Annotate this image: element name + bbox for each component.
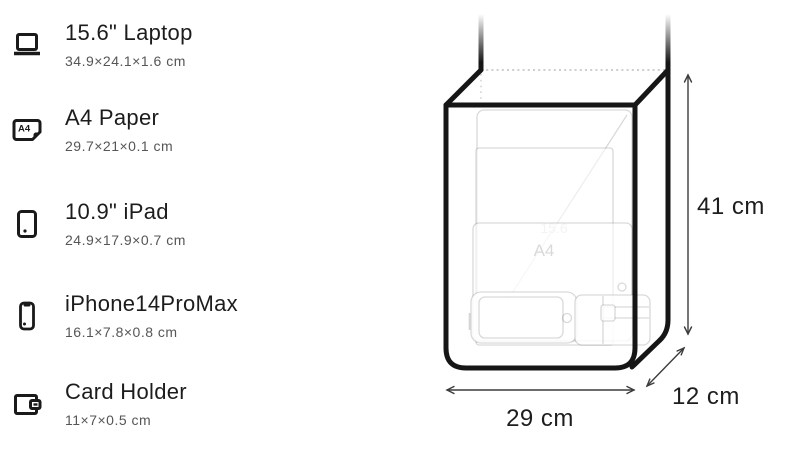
a4-paper-icon: A4 xyxy=(10,113,44,147)
bag-dimensions-figure: 15.6" Laptop 34.9×24.1×1.6 cm A4 A4 Pape… xyxy=(0,0,800,455)
item-title: 15.6" Laptop xyxy=(65,20,193,46)
right-strap xyxy=(666,14,671,71)
bag-top-right-edge xyxy=(635,70,668,105)
left-strap xyxy=(479,14,484,71)
item-title: A4 Paper xyxy=(65,105,173,131)
height-dimension-label: 41 cm xyxy=(697,193,765,220)
item-title: iPhone14ProMax xyxy=(65,291,238,317)
item-dimensions: 11×7×0.5 cm xyxy=(65,412,187,428)
list-item-a4-paper: A4 A4 Paper 29.7×21×0.1 cm xyxy=(10,105,173,154)
item-dimensions: 24.9×17.9×0.7 cm xyxy=(65,232,186,248)
item-title: Card Holder xyxy=(65,379,187,405)
item-dimensions: 34.9×24.1×1.6 cm xyxy=(65,53,193,69)
laptop-icon xyxy=(10,28,44,62)
list-item-laptop: 15.6" Laptop 34.9×24.1×1.6 cm xyxy=(10,20,193,69)
item-dimensions: 29.7×21×0.1 cm xyxy=(65,138,173,154)
item-dimensions: 16.1×7.8×0.8 cm xyxy=(65,324,238,340)
list-item-iphone: iPhone14ProMax 16.1×7.8×0.8 cm xyxy=(10,291,238,340)
list-item-ipad: 10.9" iPad 24.9×17.9×0.7 cm xyxy=(10,199,186,248)
bag-drawing: 15.6 A4 xyxy=(380,0,800,455)
card-holder-icon xyxy=(10,387,44,421)
fits-items-list: 15.6" Laptop 34.9×24.1×1.6 cm A4 A4 Pape… xyxy=(0,0,380,455)
iphone-icon xyxy=(10,299,44,333)
ghost-iphone xyxy=(470,292,577,343)
list-item-card-holder: Card Holder 11×7×0.5 cm xyxy=(10,379,187,428)
ghost-items: 15.6 A4 xyxy=(470,110,650,345)
ipad-icon xyxy=(10,207,44,241)
bag-3d-diagram: 15.6 A4 xyxy=(380,0,800,455)
depth-arrow xyxy=(647,348,684,386)
item-title: 10.9" iPad xyxy=(65,199,186,225)
ghost-card-holder xyxy=(575,295,650,345)
bag-top-left-edge xyxy=(446,70,481,105)
depth-dimension-label: 12 cm xyxy=(672,383,740,410)
width-dimension-label: 29 cm xyxy=(506,405,574,432)
a4-icon-label: A4 xyxy=(18,123,31,134)
